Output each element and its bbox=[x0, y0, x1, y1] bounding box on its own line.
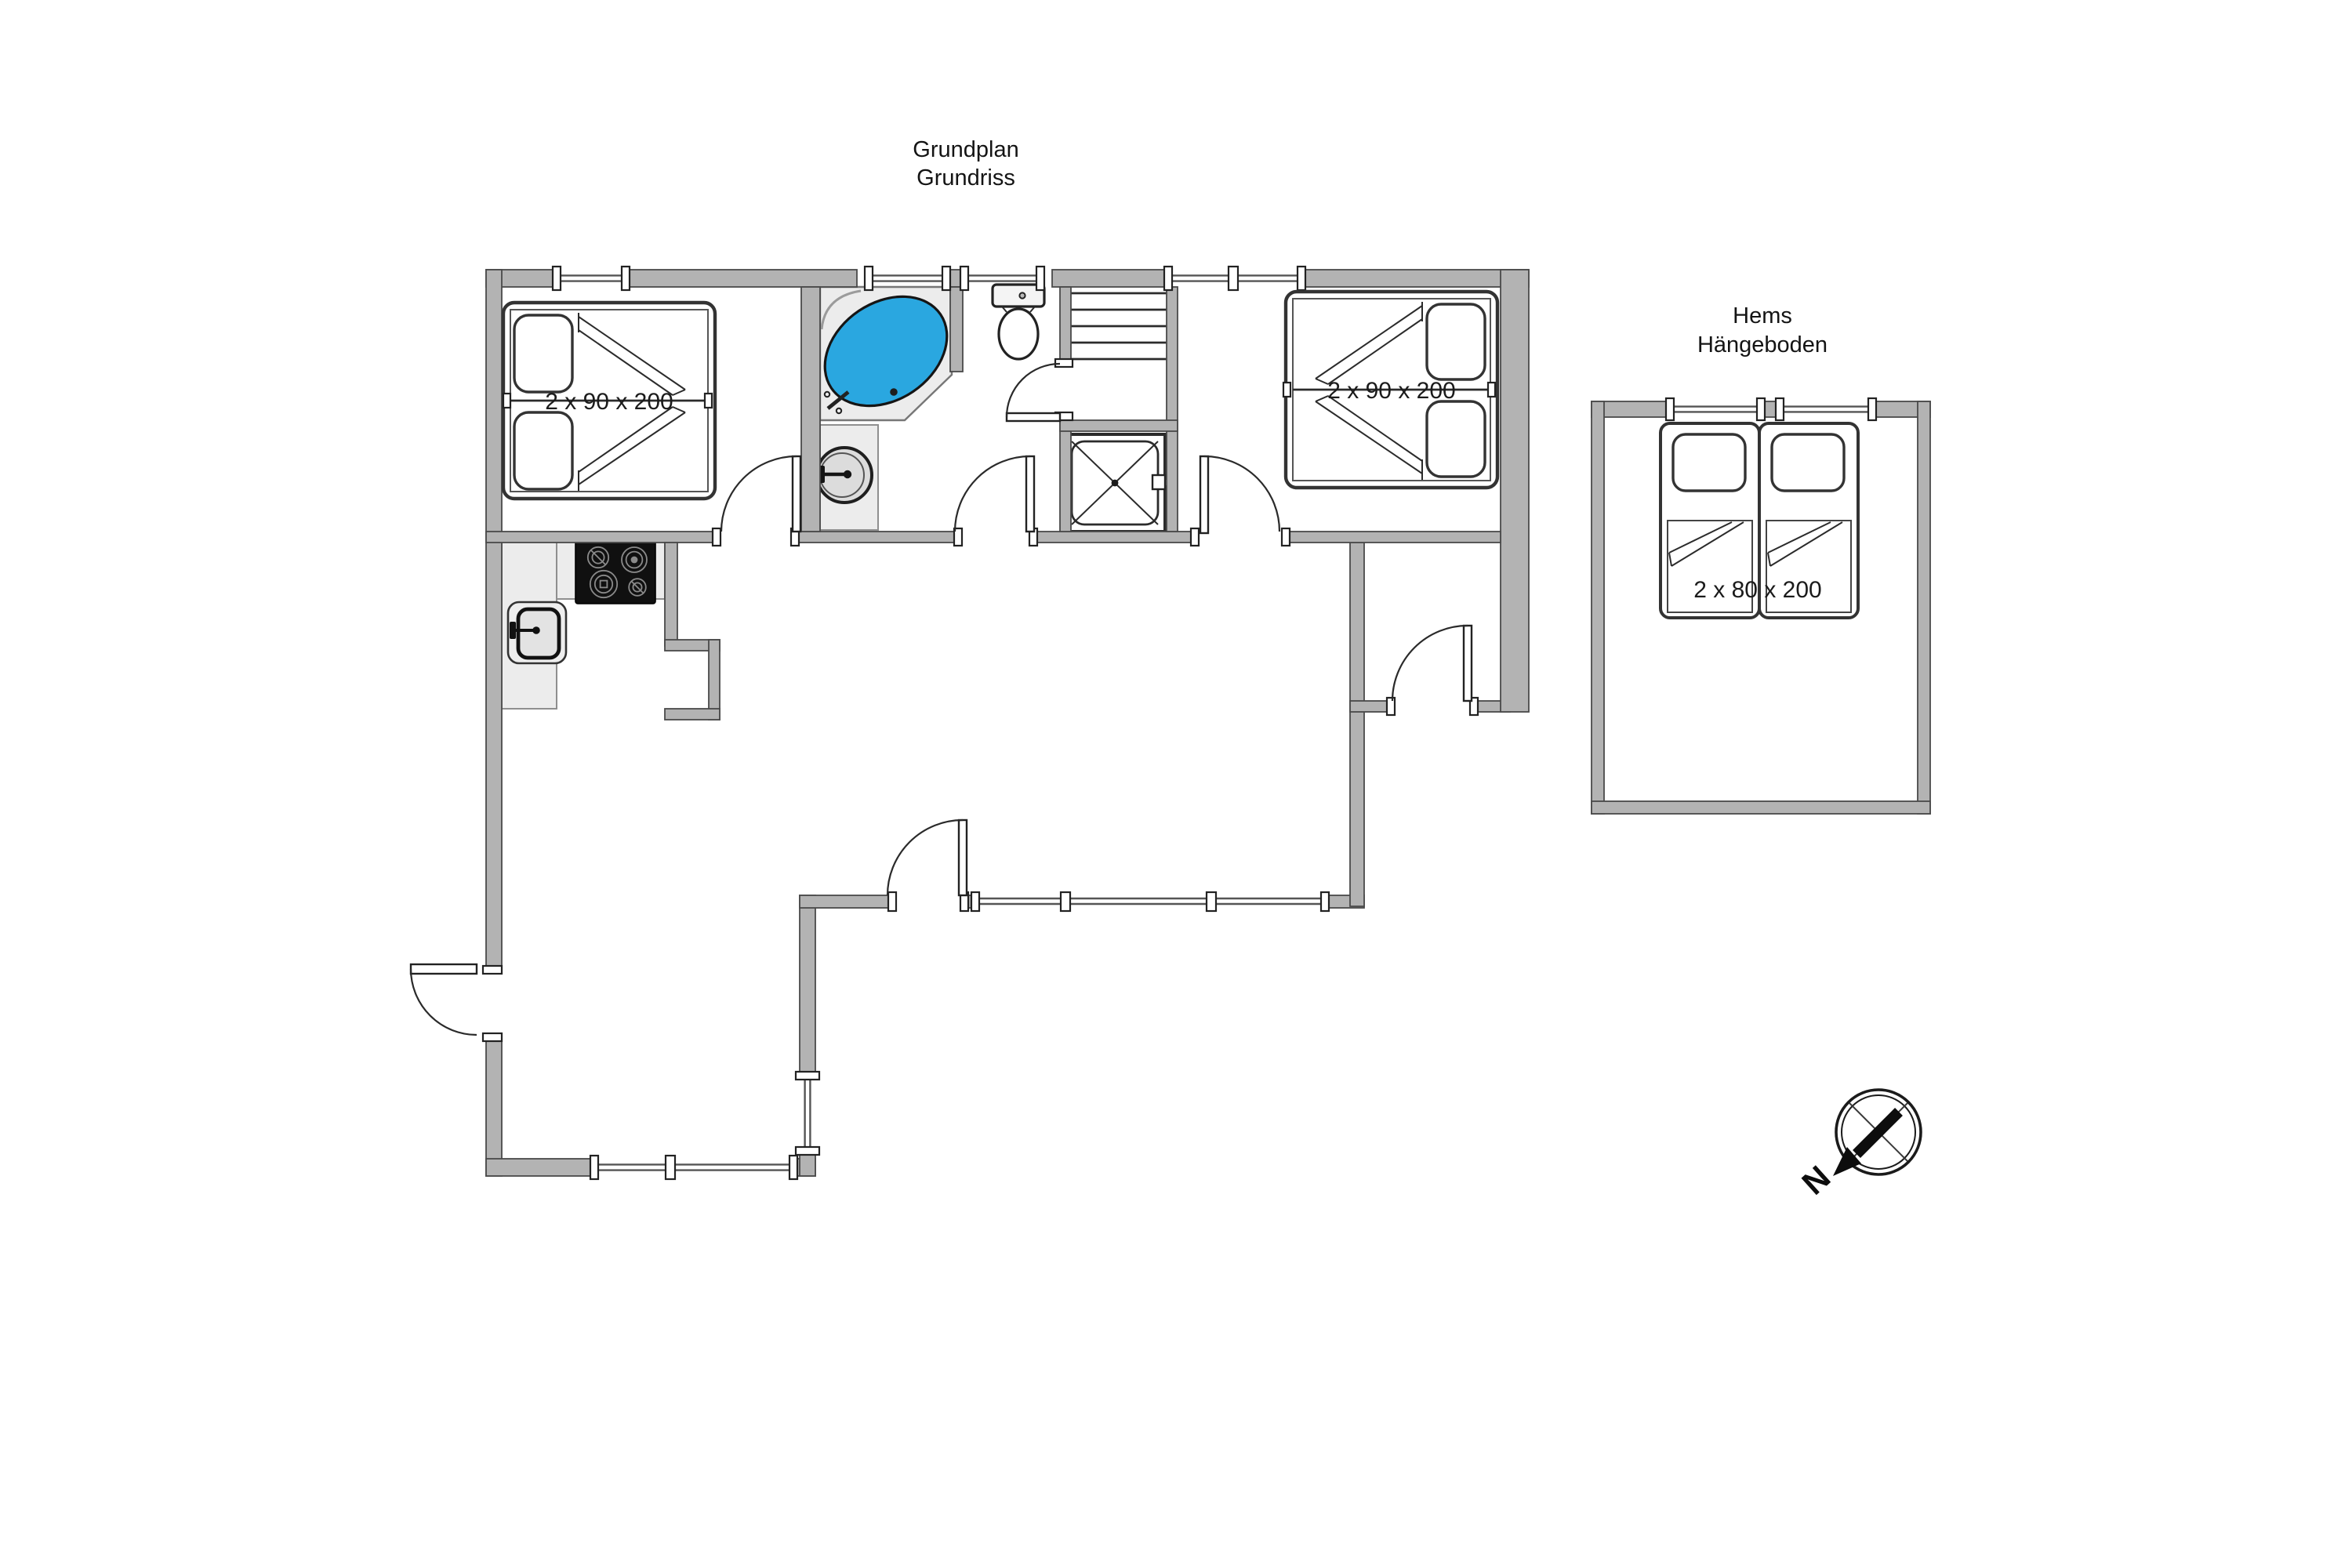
compass-needle bbox=[1857, 1112, 1899, 1154]
window-bedroom-left bbox=[553, 267, 630, 290]
kitchen-faucet bbox=[510, 622, 516, 639]
bedroom-left-door bbox=[713, 456, 800, 546]
shower bbox=[1065, 434, 1171, 532]
washbasin bbox=[816, 448, 872, 503]
window-loft-left bbox=[1666, 398, 1765, 420]
loft-title: Hems Hängeboden bbox=[1697, 303, 1828, 358]
compass-north-label: N bbox=[1795, 1159, 1837, 1202]
bed-size-label: 2 x 90 x 200 bbox=[545, 389, 673, 415]
pillow bbox=[514, 315, 572, 392]
floorplan-drawing: Grundplan Grundriss Hems Hängeboden bbox=[0, 0, 2352, 1568]
window-bedroom-right bbox=[1164, 267, 1305, 290]
living-room-door bbox=[887, 820, 968, 911]
bed-bedroom-right: 2 x 90 x 200 bbox=[1283, 292, 1497, 488]
stove bbox=[575, 539, 655, 604]
window-living-west-vertical bbox=[796, 1072, 819, 1155]
plan-title-line1: Grundplan bbox=[913, 137, 1018, 162]
bed-bedroom-left: 2 x 90 x 200 bbox=[503, 303, 715, 499]
toilet-bowl bbox=[999, 309, 1038, 359]
shower-door-handle bbox=[1152, 475, 1165, 489]
pillow bbox=[514, 412, 572, 489]
bedroom-right-door bbox=[1191, 456, 1290, 546]
loft-title-line2: Hängeboden bbox=[1697, 332, 1828, 358]
utility-room-door bbox=[1387, 626, 1478, 715]
plan-title: Grundplan Grundriss bbox=[913, 137, 1018, 191]
understairs-door bbox=[1007, 359, 1073, 421]
bed-size-label: 2 x 90 x 200 bbox=[1327, 378, 1455, 404]
toilet bbox=[993, 285, 1044, 359]
pillow bbox=[1772, 434, 1844, 491]
compass: N bbox=[1795, 1090, 1921, 1202]
window-living-south bbox=[971, 892, 1329, 911]
loft-title-line1: Hems bbox=[1733, 303, 1792, 328]
pillow bbox=[1673, 434, 1745, 491]
kitchen bbox=[502, 536, 665, 709]
window-living-southwest bbox=[590, 1156, 797, 1179]
bathroom-door bbox=[954, 456, 1037, 546]
floorplan-page: Grundplan Grundriss Hems Hängeboden bbox=[0, 0, 2352, 1568]
loft-beds: 2 x 80 x 200 bbox=[1661, 423, 1858, 618]
window-loft-right bbox=[1776, 398, 1876, 420]
entry-door bbox=[411, 964, 502, 1041]
plan-title-line2: Grundriss bbox=[916, 165, 1015, 191]
stairs bbox=[1071, 293, 1167, 359]
bathtub-drain bbox=[890, 388, 898, 396]
bed-size-label: 2 x 80 x 200 bbox=[1693, 577, 1821, 603]
pillow bbox=[1427, 401, 1485, 477]
pillow bbox=[1427, 304, 1485, 379]
kitchen-sink bbox=[508, 602, 566, 663]
windows bbox=[553, 267, 1876, 1179]
